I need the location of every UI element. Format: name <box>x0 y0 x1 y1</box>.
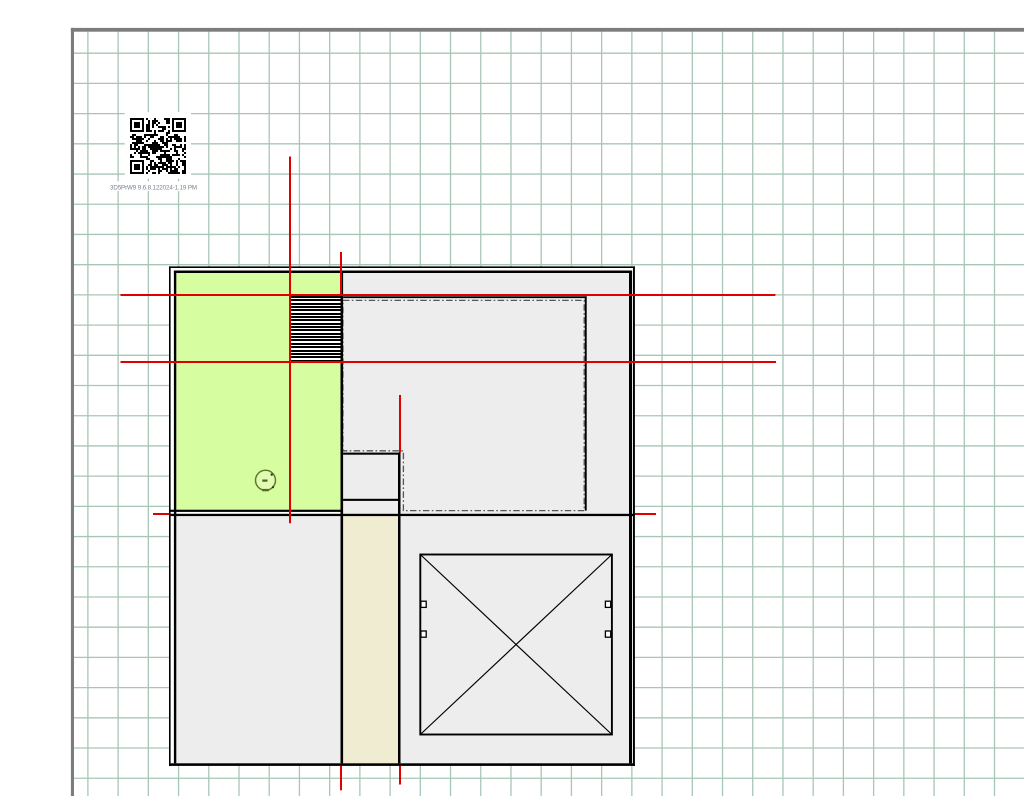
svg-text:3D5PrW9 9.6.8.122024-1.19 PM: 3D5PrW9 9.6.8.122024-1.19 PM <box>110 184 197 191</box>
